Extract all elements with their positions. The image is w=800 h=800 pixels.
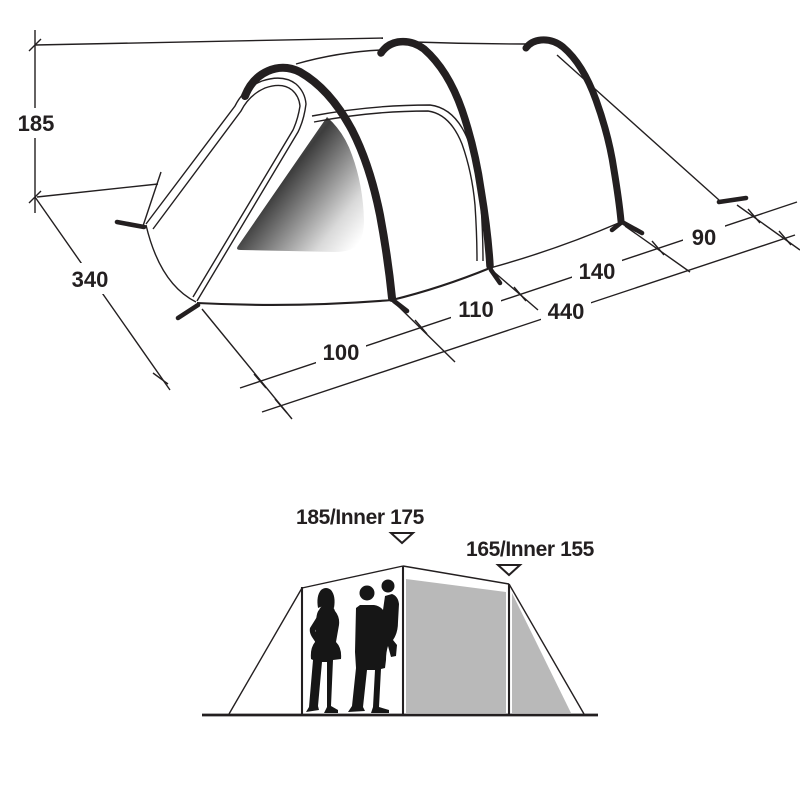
front-arch-peg bbox=[394, 301, 407, 311]
front-corner-peg bbox=[178, 305, 198, 318]
man-child-body bbox=[348, 594, 399, 713]
dim-width-label: 340 bbox=[72, 267, 109, 292]
woman-body bbox=[306, 605, 341, 713]
tent-elevation-view: 185/Inner 175 165/Inner 155 bbox=[202, 506, 598, 715]
man-and-child-silhouette bbox=[348, 580, 399, 714]
rear-arch-pole bbox=[526, 40, 621, 221]
rear-height-label: 165/Inner 155 bbox=[466, 538, 595, 561]
middle-arch-pole bbox=[381, 42, 490, 266]
peak-height-label: 185/Inner 175 bbox=[296, 506, 425, 529]
width-dim-tick bbox=[153, 373, 168, 384]
woman-silhouette bbox=[306, 588, 341, 713]
down-triangle-marker-rear bbox=[498, 565, 520, 575]
child-head bbox=[382, 580, 395, 593]
tent-dimension-diagram: 185 340 100 110 440 140 90 185/Inner 175… bbox=[0, 0, 800, 800]
left-side-peg bbox=[117, 222, 144, 227]
dim-porch-label: 100 bbox=[323, 340, 360, 365]
height-ext-bottom bbox=[37, 184, 158, 197]
ridge-line-1 bbox=[296, 50, 381, 64]
door-window-gradient bbox=[237, 117, 364, 252]
dim-height-label: 185 bbox=[18, 111, 55, 136]
ridge-line-2 bbox=[414, 42, 526, 44]
man-head bbox=[360, 586, 375, 601]
guy-lines-and-pegs bbox=[117, 55, 746, 318]
dim-section3-label: 90 bbox=[692, 225, 716, 250]
dim-section2-label: 140 bbox=[579, 259, 616, 284]
dim-length-label: 440 bbox=[548, 299, 585, 324]
diagram-svg: 185 340 100 110 440 140 90 185/Inner 175… bbox=[0, 0, 800, 800]
tent-3d-view: 185 340 100 110 440 140 90 bbox=[14, 30, 800, 419]
length-dim-line-2 bbox=[262, 235, 795, 412]
left-rear-skirt-edge bbox=[143, 172, 161, 226]
inner-tent-panel bbox=[406, 579, 506, 713]
rear-guy-peg bbox=[719, 198, 746, 202]
down-triangle-marker-peak bbox=[391, 533, 413, 543]
left-skirt-edge bbox=[146, 225, 196, 302]
rear-wedge-panel bbox=[512, 593, 571, 713]
elev-left-guy-line bbox=[229, 588, 302, 714]
rear-guy-line bbox=[557, 55, 719, 200]
front-base-edge bbox=[197, 300, 392, 305]
height-ext-top bbox=[35, 38, 383, 45]
dim-section1-label: 110 bbox=[458, 297, 494, 322]
